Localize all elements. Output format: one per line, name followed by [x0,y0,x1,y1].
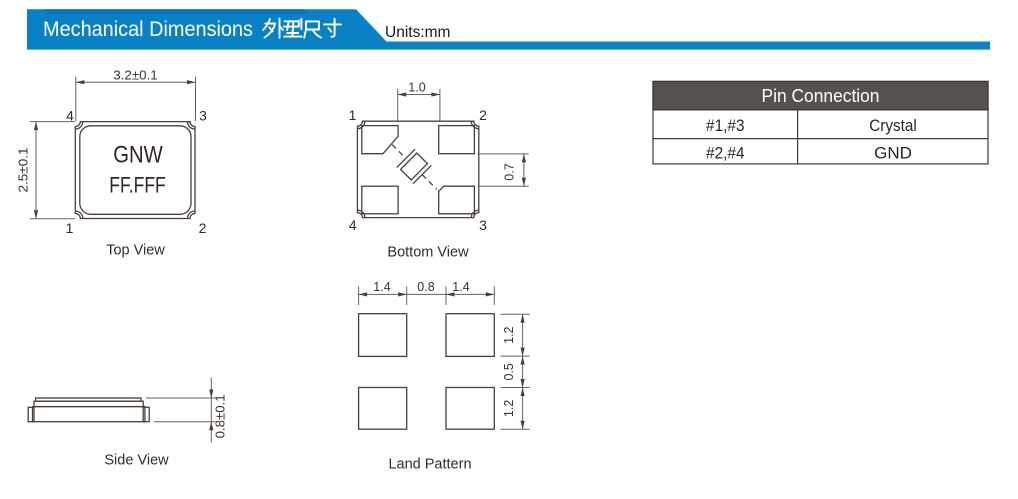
svg-text:FF.FFF: FF.FFF [109,172,166,197]
svg-text:1.2: 1.2 [502,326,516,343]
svg-text:2.5±0.1: 2.5±0.1 [16,147,30,192]
svg-text:1.2: 1.2 [502,400,516,417]
svg-text:Crystal: Crystal [869,116,917,135]
svg-text:3: 3 [199,107,207,123]
svg-text:Top View: Top View [106,243,165,259]
svg-text:Bottom View: Bottom View [387,245,469,261]
svg-text:1.4: 1.4 [452,280,469,294]
svg-text:4: 4 [66,107,74,123]
svg-text:GNW: GNW [113,142,163,169]
svg-text:1.4: 1.4 [373,280,390,294]
svg-text:Units:mm: Units:mm [385,24,450,41]
svg-text:0.7: 0.7 [503,163,517,180]
svg-text:GND: GND [874,144,912,163]
svg-text:2: 2 [199,220,207,236]
svg-text:3: 3 [479,217,487,233]
svg-text:1: 1 [66,220,74,236]
svg-text:Pin Connection: Pin Connection [762,85,880,106]
svg-text:1: 1 [349,107,357,123]
svg-text:0.8: 0.8 [417,280,434,294]
svg-text:2: 2 [479,107,487,123]
svg-text:3.2±0.1: 3.2±0.1 [113,69,158,83]
svg-text:#2,#4: #2,#4 [706,144,745,163]
svg-text:0.8±0.1: 0.8±0.1 [214,394,228,438]
svg-text:0.5: 0.5 [502,363,516,380]
svg-text:Side View: Side View [104,453,169,469]
svg-text:Mechanical Dimensions: Mechanical Dimensions [43,18,253,41]
svg-text:1.0: 1.0 [408,81,425,95]
svg-text:#1,#3: #1,#3 [706,116,745,135]
svg-text:4: 4 [349,217,357,233]
svg-text:Land Pattern: Land Pattern [388,457,471,473]
